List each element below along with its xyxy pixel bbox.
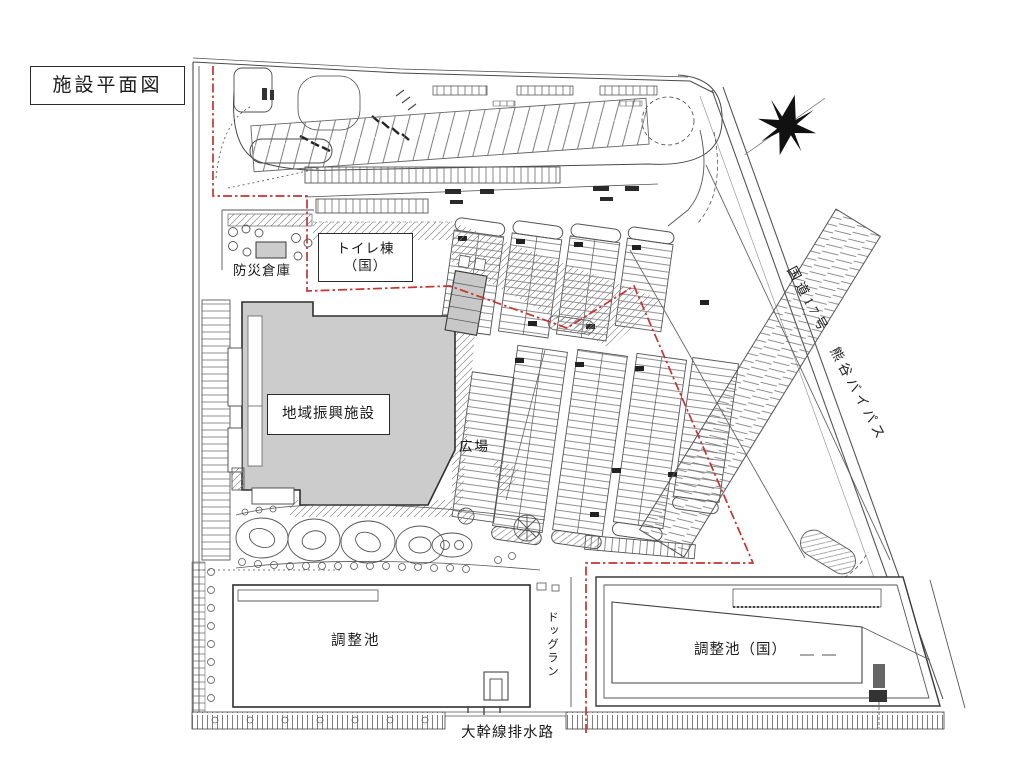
drainage-channel-label: 大幹線排水路 [461,721,554,742]
facility-site-plan: 施設平面図 防災倉庫 トイレ棟 （国） 地域振興施設 広場 調整池 ドッグラン … [0,0,1024,777]
plaza-label: 広場 [459,435,490,455]
regulation-pond-left [233,585,530,715]
community-facility-label-box: 地域振興施設 [267,394,390,435]
upper-stall-rows [305,167,658,213]
plan-title-box: 施設平面図 [30,66,185,105]
disaster-warehouse-label: 防災倉庫 [233,259,291,279]
toilet-building-label-box: トイレ棟 （国） [318,233,413,282]
dogrun-label: ドッグラン [544,611,560,679]
plan-title: 施設平面図 [52,74,162,98]
toilet-label-line1: トイレ棟 [337,241,395,258]
site-plan-drawing [0,0,1024,777]
regulation-pond-right-label: 調整池（国） [694,638,787,659]
drainage-channel [192,712,944,729]
toilet-label-line2: （国） [344,258,388,275]
community-facility-label: 地域振興施設 [282,405,375,423]
regulation-pond-left-label: 調整池 [331,629,381,650]
compass-rose-icon [745,83,825,170]
